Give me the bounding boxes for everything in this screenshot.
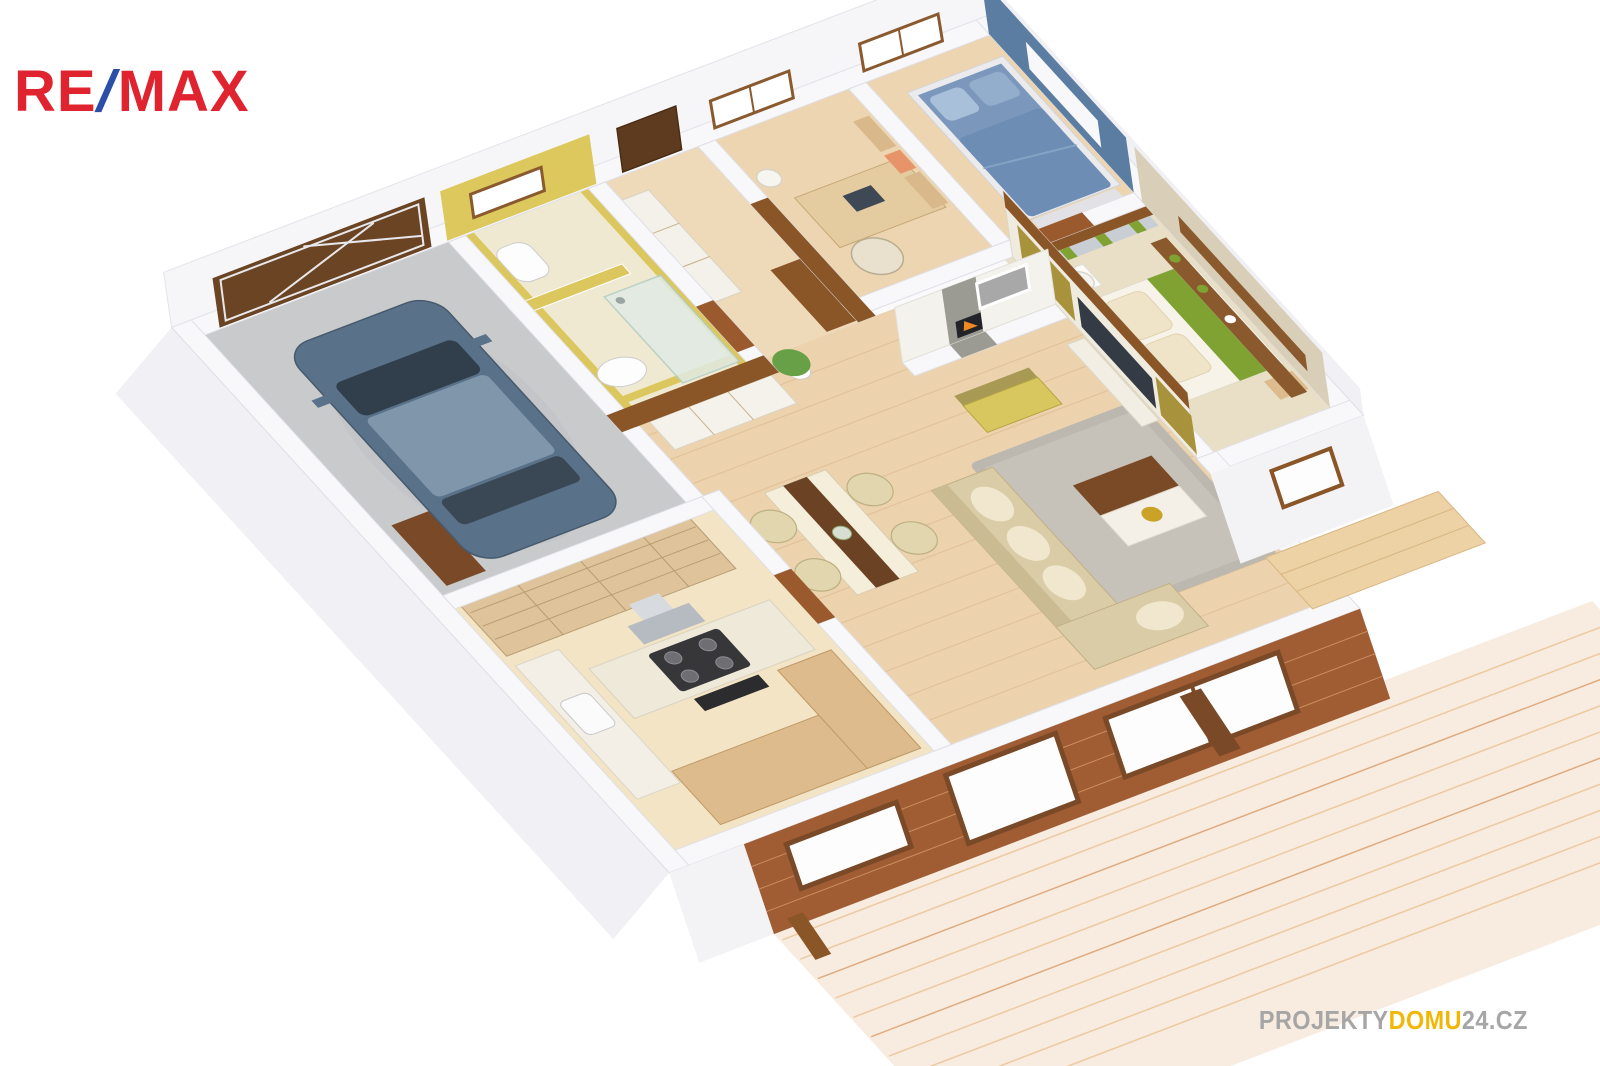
floor-plan-3d: [0, 0, 1600, 1066]
watermark-projekty: PROJEKTY: [1259, 1005, 1389, 1035]
remax-logo-max: MAX: [118, 59, 250, 124]
remax-logo: RE/MAX: [14, 58, 250, 125]
watermark-domu: DOMU: [1389, 1005, 1462, 1035]
remax-logo-re: RE: [14, 59, 97, 124]
watermark: PROJEKTYDOMU24.CZ: [1259, 1005, 1528, 1036]
floor-plan-render: RE/MAX PROJEKTYDOMU24.CZ: [0, 0, 1600, 1066]
watermark-suffix: 24.CZ: [1462, 1005, 1528, 1035]
